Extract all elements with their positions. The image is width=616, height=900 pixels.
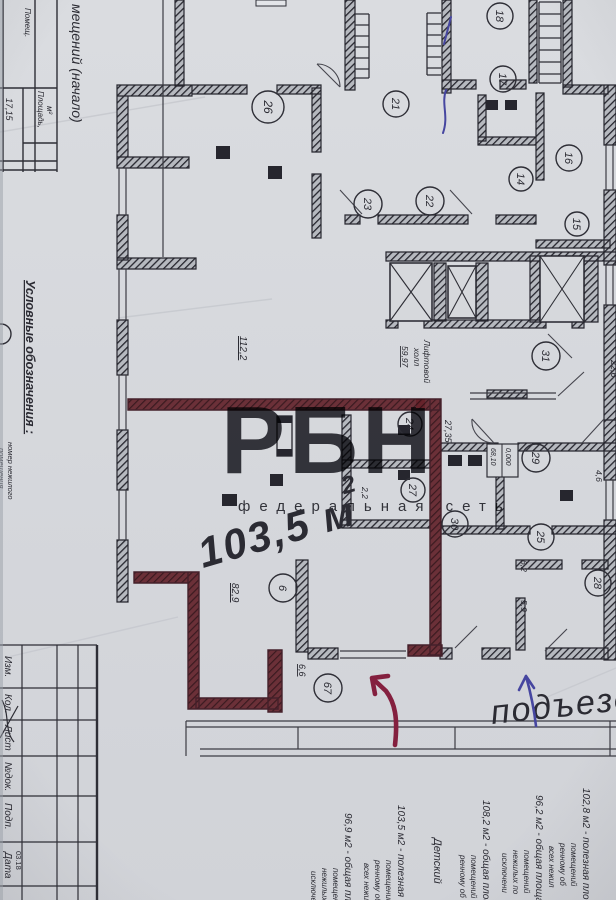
floor-plan-svg: 26 21 18 17 23 22 16 14 15 31 24 27 29 3…	[0, 0, 616, 900]
photo-left-edge-shadow	[0, 0, 3, 900]
photo-vignette	[0, 0, 616, 900]
floor-plan-photo: 26 21 18 17 23 22 16 14 15 31 24 27 29 3…	[0, 0, 616, 900]
